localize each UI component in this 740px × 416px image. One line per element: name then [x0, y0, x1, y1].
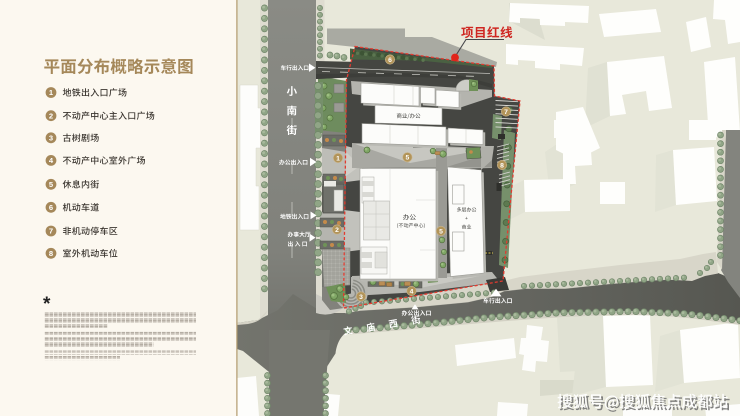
svg-text:4: 4	[410, 288, 414, 295]
svg-text:1: 1	[336, 155, 340, 162]
svg-text:8: 8	[49, 249, 53, 258]
svg-text:5: 5	[439, 228, 443, 235]
svg-text:6: 6	[49, 203, 53, 212]
svg-text:2: 2	[335, 227, 339, 234]
svg-text:8: 8	[500, 162, 504, 169]
svg-text:2: 2	[49, 111, 53, 120]
svg-text:3: 3	[359, 294, 363, 301]
svg-text:*: *	[43, 294, 51, 315]
svg-text:5: 5	[406, 155, 410, 162]
svg-text:7: 7	[49, 227, 53, 236]
svg-text:6: 6	[388, 57, 392, 64]
svg-text:3: 3	[49, 134, 53, 143]
svg-text:7: 7	[504, 109, 508, 116]
